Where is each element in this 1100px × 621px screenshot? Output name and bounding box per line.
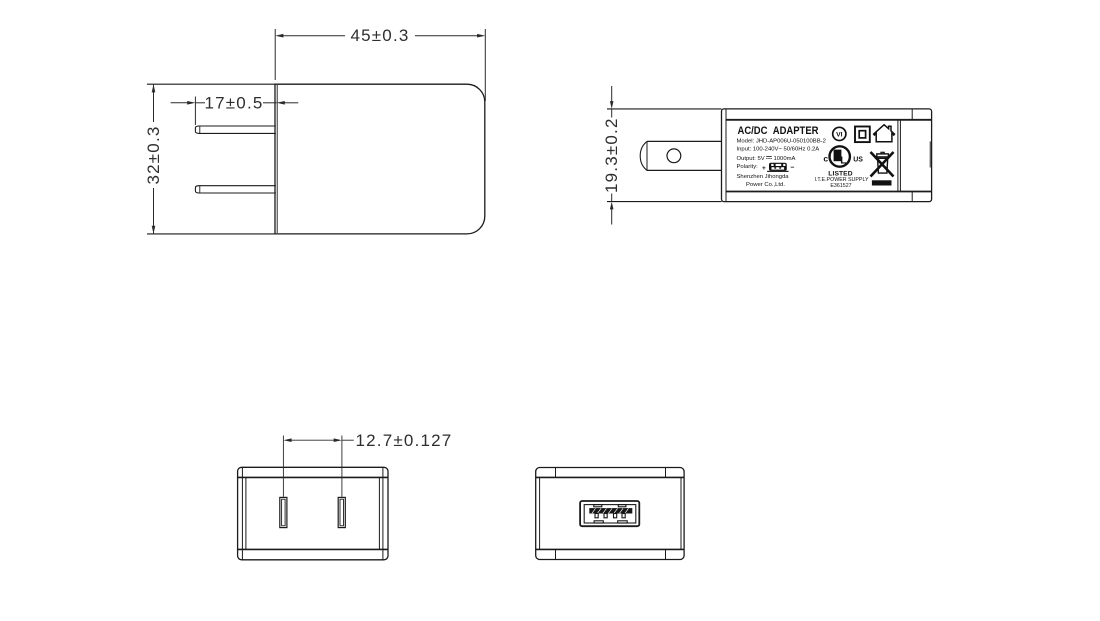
svg-text:E361527: E361527 xyxy=(830,183,851,189)
svg-text:12.7±0.127: 12.7±0.127 xyxy=(356,431,453,450)
svg-text:32±0.3: 32±0.3 xyxy=(144,125,163,184)
svg-text:L: L xyxy=(840,156,846,167)
svg-text:45±0.3: 45±0.3 xyxy=(350,26,409,45)
svg-text:−: − xyxy=(790,164,794,171)
svg-text:c: c xyxy=(823,154,828,164)
svg-text:Polarity:: Polarity: xyxy=(737,164,759,170)
svg-text:17±0.5: 17±0.5 xyxy=(204,93,263,112)
svg-text:VI: VI xyxy=(836,131,843,138)
svg-text:Output: 5V: Output: 5V xyxy=(737,156,765,162)
svg-text:US: US xyxy=(853,157,863,164)
svg-text:AC/DC ADAPTER: AC/DC ADAPTER xyxy=(738,125,819,137)
svg-text:Input: 100-240V~ 50/60Hz 0.2: Input: 100-240V~ 50/60Hz 0.2A xyxy=(737,146,820,152)
svg-text:Model: JHD-AP006U-050100BB-2: Model: JHD-AP006U-050100BB-2 xyxy=(737,138,826,144)
svg-text:Power Co.,Ltd.: Power Co.,Ltd. xyxy=(746,182,785,188)
svg-text:1000mA: 1000mA xyxy=(774,156,796,162)
svg-text:+: + xyxy=(762,165,766,172)
svg-text:19.3±0.2: 19.3±0.2 xyxy=(602,117,621,193)
svg-text:Shenzhen Jihongda: Shenzhen Jihongda xyxy=(737,174,790,180)
